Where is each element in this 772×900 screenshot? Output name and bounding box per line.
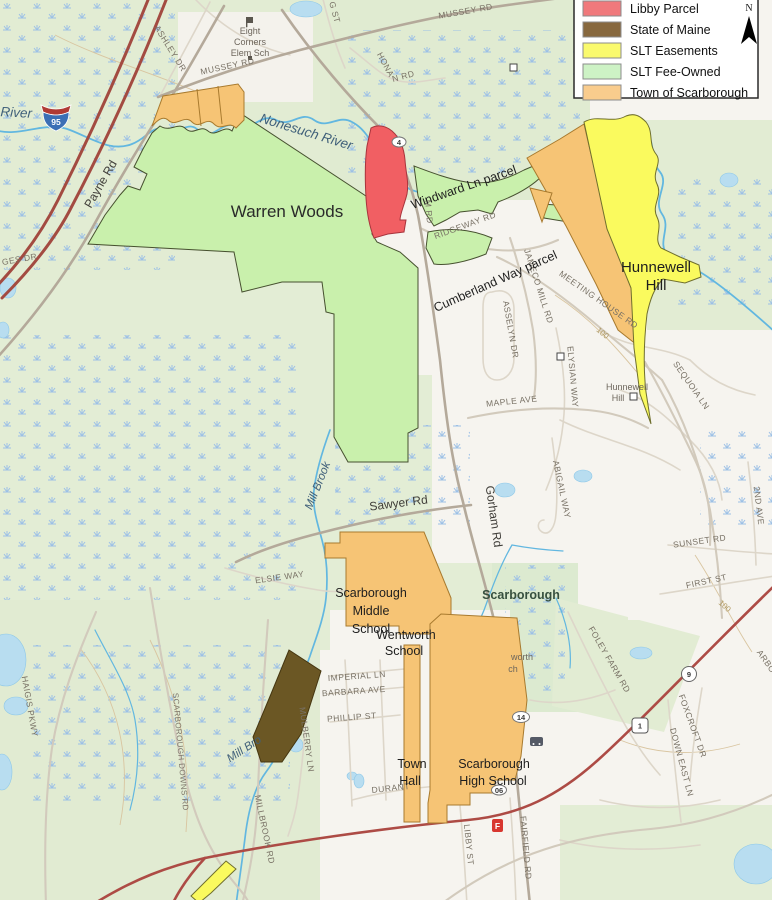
place-label-eight-corners-1: Eight	[240, 26, 261, 36]
building-icon	[630, 393, 637, 400]
parcel-label-middle-school-1: Scarborough	[335, 586, 407, 600]
place-label-wentworth-frag-2: ch	[508, 664, 518, 674]
place-label-wentworth-frag-1: worth	[510, 652, 533, 662]
route-number: 9	[687, 670, 691, 679]
legend-item-fee-owned: SLT Fee-Owned	[583, 64, 721, 79]
legend-swatch-libby	[583, 1, 621, 16]
legend-swatch-fee-owned	[583, 64, 621, 79]
north-label: N	[745, 3, 752, 14]
i95-shield-number: 95	[51, 117, 61, 127]
legend-item-easements: SLT Easements	[583, 43, 718, 58]
pond	[0, 322, 9, 338]
place-label-hunnewell-small-2: Hill	[612, 393, 625, 403]
marsh-topright	[676, 175, 772, 305]
pond	[354, 774, 364, 788]
parcel-label-middle-school-2: Middle	[353, 604, 390, 618]
parcel-label-high-school-1: Scarborough	[458, 757, 530, 771]
route114-shield: 14	[513, 712, 530, 723]
parcel-town-strip	[404, 645, 420, 822]
legend-label-town: Town of Scarborough	[630, 86, 748, 100]
marsh-midleft	[0, 335, 300, 600]
transit-poi-icon	[530, 737, 543, 746]
flag-icon	[247, 17, 253, 23]
legend-label-libby: Libby Parcel	[630, 2, 699, 16]
map-canvas[interactable]: 95 4 14 9 1 06	[0, 0, 772, 900]
legend-swatch-easements	[583, 43, 621, 58]
poi-dot	[533, 743, 535, 745]
legend-item-libby: Libby Parcel	[583, 1, 699, 16]
legend-item-town: Town of Scarborough	[583, 85, 748, 100]
legend: Libby Parcel State of Maine SLT Easement…	[574, 0, 758, 100]
poi-box	[530, 737, 543, 746]
marsh-bottomleft	[30, 645, 290, 805]
poi-dot	[539, 743, 541, 745]
place-label-eight-corners-3: Elem Sch	[231, 48, 270, 58]
parcel-label-wentworth-2: School	[385, 644, 423, 658]
route-number: 1	[638, 722, 642, 731]
parcel-label-town-hall-1: Town	[397, 757, 426, 771]
pond	[630, 647, 652, 659]
legend-label-state: State of Maine	[630, 23, 711, 37]
legend-label-easements: SLT Easements	[630, 44, 718, 58]
place-label-eight-corners-2: Corners	[234, 37, 267, 47]
parcel-label-wentworth-1: Wentworth	[376, 628, 436, 642]
place-label-scarborough: Scarborough	[482, 588, 560, 602]
pond	[290, 1, 322, 17]
pond	[720, 173, 738, 187]
legend-swatch-state	[583, 22, 621, 37]
parcel-label-hunnewell-1: Hunnewell	[621, 259, 691, 276]
fire-letter: F	[495, 821, 500, 831]
parcel-label-town-hall-2: Hall	[399, 774, 421, 788]
parcel-label-warren-woods: Warren Woods	[231, 202, 343, 221]
building-icon	[557, 353, 564, 360]
legend-swatch-town	[583, 85, 621, 100]
route9-shield: 9	[682, 667, 697, 682]
pond	[574, 470, 592, 482]
water-label-river-frag: River	[0, 104, 33, 121]
fire-station-icon: F	[492, 819, 503, 832]
route-number: 14	[517, 713, 526, 722]
legend-item-state: State of Maine	[583, 22, 711, 37]
map-screenshot[interactable]: 95 4 14 9 1 06	[0, 0, 772, 900]
route114-fragment-shield: 4	[392, 137, 406, 147]
legend-label-fee-owned: SLT Fee-Owned	[630, 65, 721, 79]
parcel-label-hunnewell-2: Hill	[646, 277, 667, 294]
building-icon	[510, 64, 517, 71]
parcel-label-high-school-2: High School	[459, 774, 526, 788]
route1-shield: 1	[632, 718, 648, 733]
place-label-hunnewell-small-1: Hunnewell	[606, 382, 648, 392]
